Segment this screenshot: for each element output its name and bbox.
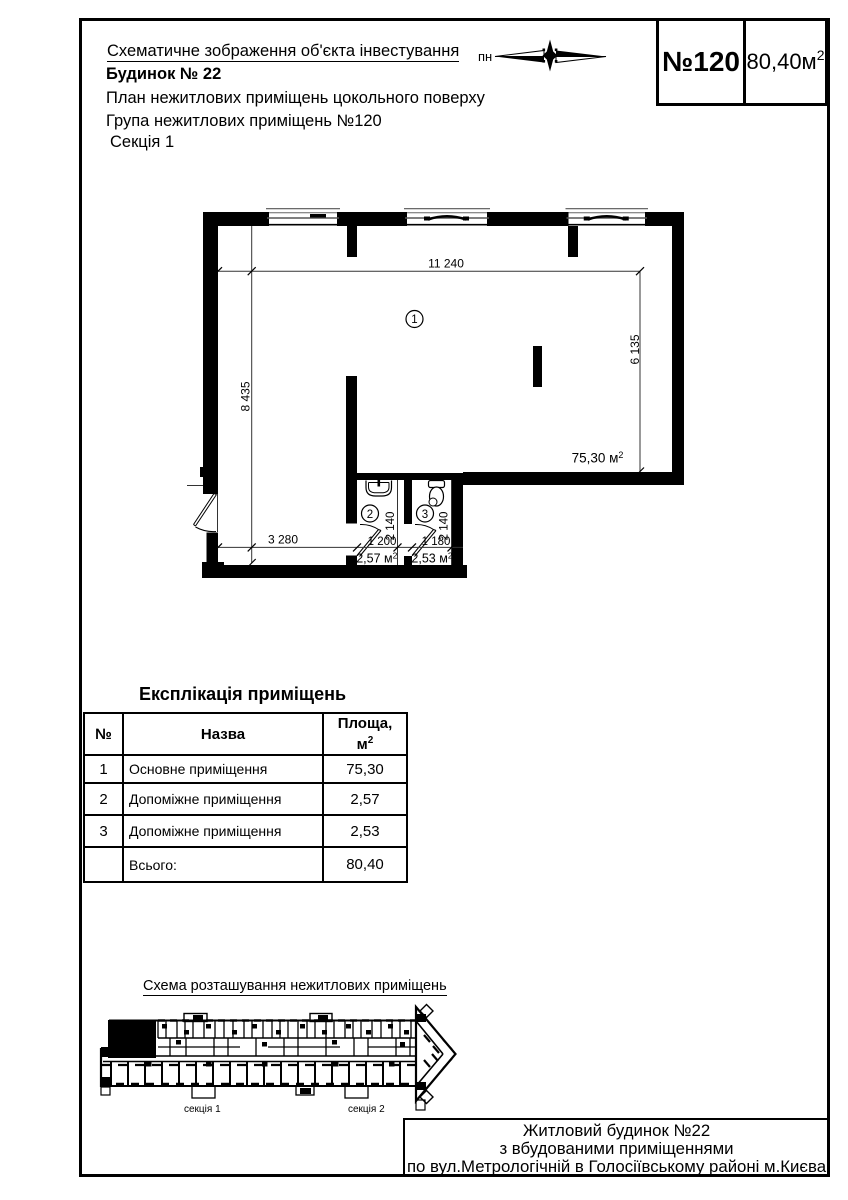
- svg-text:6 135: 6 135: [628, 334, 642, 364]
- svg-text:1: 1: [411, 314, 417, 326]
- svg-text:пн: пн: [478, 49, 492, 64]
- svg-text:3 280: 3 280: [268, 533, 298, 547]
- svg-text:2,57 м2: 2,57 м2: [356, 551, 397, 566]
- svg-text:8 435: 8 435: [239, 381, 253, 411]
- svg-text:11 240: 11 240: [428, 257, 464, 271]
- svg-text:2 140: 2 140: [439, 512, 451, 541]
- svg-text:2: 2: [367, 509, 373, 521]
- svg-text:2 140: 2 140: [385, 512, 397, 541]
- svg-text:75,30 м2: 75,30 м2: [572, 450, 624, 466]
- svg-text:3: 3: [422, 509, 428, 521]
- svg-text:2,53 м2: 2,53 м2: [411, 551, 452, 566]
